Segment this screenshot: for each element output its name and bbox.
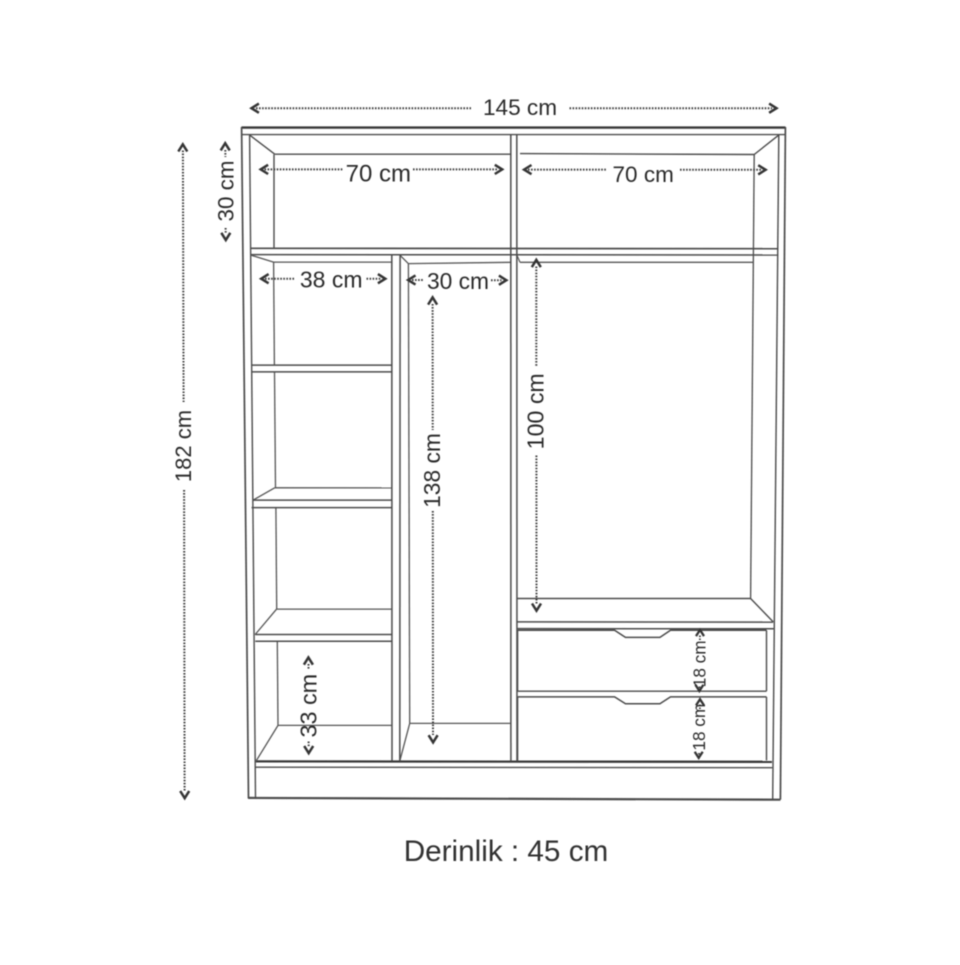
svg-text:100 cm: 100 cm (522, 373, 548, 449)
svg-text:70 cm: 70 cm (346, 160, 411, 187)
svg-text:30 cm: 30 cm (214, 161, 239, 222)
svg-text:70 cm: 70 cm (613, 162, 674, 187)
svg-text:33 cm: 33 cm (296, 674, 322, 738)
svg-text:18 cm: 18 cm (690, 640, 710, 687)
svg-text:182 cm: 182 cm (171, 410, 196, 482)
svg-text:30 cm: 30 cm (427, 268, 489, 294)
svg-text:Derinlik : 45 cm: Derinlik : 45 cm (404, 835, 609, 868)
svg-text:18 cm: 18 cm (689, 704, 709, 751)
svg-text:38 cm: 38 cm (300, 267, 363, 293)
svg-text:145 cm: 145 cm (483, 95, 557, 120)
svg-text:138 cm: 138 cm (419, 433, 445, 508)
